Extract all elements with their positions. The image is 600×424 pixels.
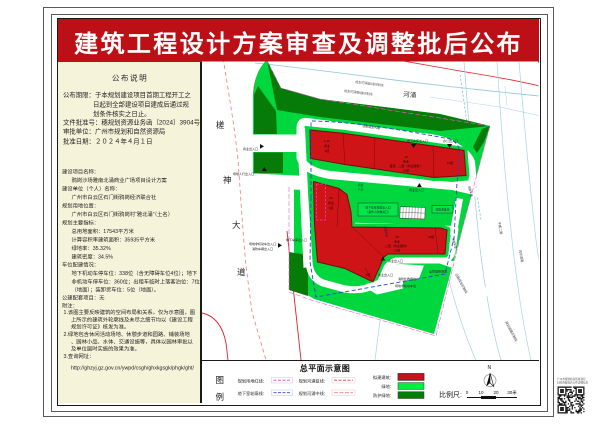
svg-text:3层: 3层	[329, 205, 334, 210]
svg-text:13层: 13层	[447, 160, 453, 165]
svg-text:扫码查看批后公布详细信息: 扫码查看批后公布详细信息	[557, 381, 589, 385]
svg-text:拟建建筑：: 拟建建筑：	[373, 374, 394, 381]
svg-text:商业: 商业	[358, 183, 364, 187]
svg-text:规划河涌中线：: 规划河涌中线：	[299, 390, 328, 397]
svg-text:建设项目名称：: 建设项目名称：	[62, 168, 99, 176]
svg-text:计算容积率建筑面积：35935平方米: 计算容积率建筑面积：35935平方米	[72, 236, 156, 244]
svg-text:13层: 13层	[403, 168, 409, 173]
svg-text:规划用地位置：: 规划用地位置：	[62, 202, 99, 210]
svg-text:广州市白云区石门街鸦岗经济联合社: 广州市白云区石门街鸦岗经济联合社	[72, 193, 157, 201]
svg-text:2#: 2#	[395, 235, 399, 239]
svg-text:1-2F: 1-2F	[324, 139, 330, 143]
svg-text:http://ghzyj.gz.gov.cn/ywpd/cs: http://ghzyj.gz.gov.cn/ywpd/csgh/ghxkgsg…	[71, 365, 195, 371]
svg-text:商业: 商业	[394, 239, 400, 244]
svg-text:3层: 3层	[366, 272, 371, 277]
svg-text:日起到全部建设项目建成后通过规: 日起到全部建设项目建成后通过规	[93, 99, 189, 108]
svg-text:文件批准号：穗规划资源业务函〔2024〕3904号: 文件批准号：穗规划资源业务函〔2024〕3904号	[63, 117, 200, 126]
svg-text:消防扑救场地: 消防扑救场地	[398, 276, 416, 281]
svg-text:N: N	[488, 365, 492, 371]
svg-text:消防车辆出入口: 消防车辆出入口	[252, 246, 273, 251]
svg-text:（地面）；装卸货车位：5位（地面）。: （地面）；装卸货车位：5位（地面）。	[72, 286, 160, 294]
svg-text:垃圾收集站: 垃圾收集站	[436, 208, 450, 212]
svg-text:比例尺:: 比例尺:	[439, 390, 462, 399]
svg-text:规划河涌蓝线：: 规划河涌蓝线：	[299, 378, 328, 385]
svg-text:审批单位：广州市规划和自然资源局: 审批单位：广州市规划和自然资源局	[63, 127, 165, 136]
svg-text:场地非机动车出入口: 场地非机动车出入口	[249, 241, 276, 246]
svg-text:0: 0	[466, 390, 469, 395]
svg-text:30米: 30米	[507, 389, 517, 396]
svg-text:地下车库出入口: 地下车库出入口	[407, 138, 428, 143]
svg-text:全民健身场地: 全民健身场地	[429, 269, 447, 274]
svg-text:附注：: 附注：	[62, 302, 78, 310]
svg-text:商业: 商业	[403, 159, 409, 164]
svg-text:、园林小品、水体、交通设施等，具体以园林审批以: 、园林小品、水体、交通设施等，具体以园林审批以	[71, 337, 194, 345]
svg-text:1.该图主要反映建筑的空间布局和关系，仅为示意图，图: 1.该图主要反映建筑的空间布局和关系，仅为示意图，图	[64, 308, 196, 316]
svg-text:规划用地红线：: 规划用地红线：	[238, 378, 267, 385]
svg-text:20: 20	[493, 390, 499, 395]
svg-text:防护绿地：: 防护绿地：	[373, 392, 394, 399]
svg-text:入口: 入口	[358, 187, 364, 191]
svg-text:公布说明: 公布说明	[112, 73, 148, 83]
svg-text:10: 10	[478, 390, 484, 395]
svg-text:广州市白云区石门街鸦岗村“雅北涌”（土名）: 广州市白云区石门街鸦岗村“雅北涌”（土名）	[72, 210, 174, 218]
svg-text:二层（商业服务）: 二层（商业服务）	[385, 243, 409, 248]
svg-text:绿地率：35.32%: 绿地率：35.32%	[72, 244, 111, 252]
svg-text:总用地面积：17543平方米: 总用地面积：17543平方米	[72, 227, 135, 235]
svg-text:规划许可证》核发为准。: 规划许可证》核发为准。	[71, 323, 129, 331]
svg-text:3层: 3层	[325, 148, 330, 153]
svg-text:地下室轮廓线：: 地下室轮廓线：	[238, 390, 267, 397]
svg-text:商业: 商业	[328, 200, 334, 205]
svg-text:1#: 1#	[404, 155, 408, 159]
svg-text:13层: 13层	[428, 234, 434, 239]
svg-text:地下机动车停车位：338位（含无障碍车位4位）；地下: 地下机动车停车位：338位（含无障碍车位4位）；地下	[72, 269, 198, 277]
svg-text:公布期限：于本规划建设项目首期工程开工之: 公布期限：于本规划建设项目首期工程开工之	[63, 90, 191, 99]
svg-text:例: 例	[216, 392, 225, 402]
svg-text:规划主要指标：: 规划主要指标：	[62, 219, 99, 227]
svg-text:场地非机动车位: 场地非机动车位	[395, 283, 416, 288]
svg-text:商业出入口: 商业出入口	[409, 187, 424, 192]
svg-text:2#: 2#	[329, 196, 333, 200]
svg-text:首层、二层（商业服务）: 首层、二层（商业服务）	[389, 163, 422, 168]
svg-text:地下车库坡道出入口: 地下车库坡道出入口	[365, 206, 390, 210]
svg-text:场地人行出入口: 场地人行出入口	[233, 171, 254, 176]
svg-text:3.查询网址：: 3.查询网址：	[64, 352, 95, 360]
svg-text:鸦岗沙场雅南北涌商业广场项目设计方案: 鸦岗沙场雅南北涌商业广场项目设计方案	[72, 176, 168, 184]
svg-text:上所示的建筑外轮廓线及未尽之细节均以《建设工程: 上所示的建筑外轮廓线及未尽之细节均以《建设工程	[71, 315, 194, 323]
svg-text:办公出入口: 办公出入口	[443, 138, 458, 143]
svg-text:公建配套项目：无: 公建配套项目：无	[62, 294, 105, 302]
svg-text:及单位届时实施的效果为准。: 及单位届时实施的效果为准。	[71, 345, 140, 353]
svg-text:（兼作人防物资口）: （兼作人防物资口）	[365, 210, 390, 214]
svg-text:广州市规划和自然资源局: 广州市规划和自然资源局	[557, 377, 586, 381]
svg-text:建设单位（个人）名称：: 建设单位（个人）名称：	[62, 185, 120, 193]
svg-text:总平面示意图: 总平面示意图	[300, 363, 350, 373]
svg-text:非机动车停车位：360位；出租车临时上落客泊位：7位: 非机动车停车位：360位；出租车临时上落客泊位：7位	[72, 278, 201, 286]
svg-text:神: 神	[223, 175, 232, 185]
svg-text:大: 大	[232, 220, 241, 230]
svg-text:商业出入口: 商业出入口	[378, 272, 393, 277]
svg-text:13层: 13层	[394, 248, 400, 253]
svg-text:建筑密度：34.5%: 建筑密度：34.5%	[72, 253, 114, 261]
svg-text:商业出入口: 商业出入口	[388, 258, 403, 263]
svg-text:商业: 商业	[324, 143, 330, 148]
svg-text:图: 图	[216, 375, 225, 385]
svg-text:商业出入口: 商业出入口	[243, 146, 258, 151]
svg-text:绿地：: 绿地：	[381, 383, 394, 389]
svg-text:地下车库出入口: 地下车库出入口	[286, 237, 307, 242]
svg-text:批准日期：２０２４年４月１日: 批准日期：２０２４年４月１日	[63, 136, 152, 145]
svg-text:划条件核实之日止。: 划条件核实之日止。	[93, 109, 151, 118]
svg-text:2.绿地包含休闲活动场地、休憩步道和园路、铺装场地: 2.绿地包含休闲活动场地、休憩步道和园路、铺装场地	[64, 330, 191, 338]
svg-text:车位配建情况：: 车位配建情况：	[62, 261, 99, 269]
svg-text:道: 道	[237, 267, 246, 277]
svg-text:槎: 槎	[216, 120, 225, 130]
